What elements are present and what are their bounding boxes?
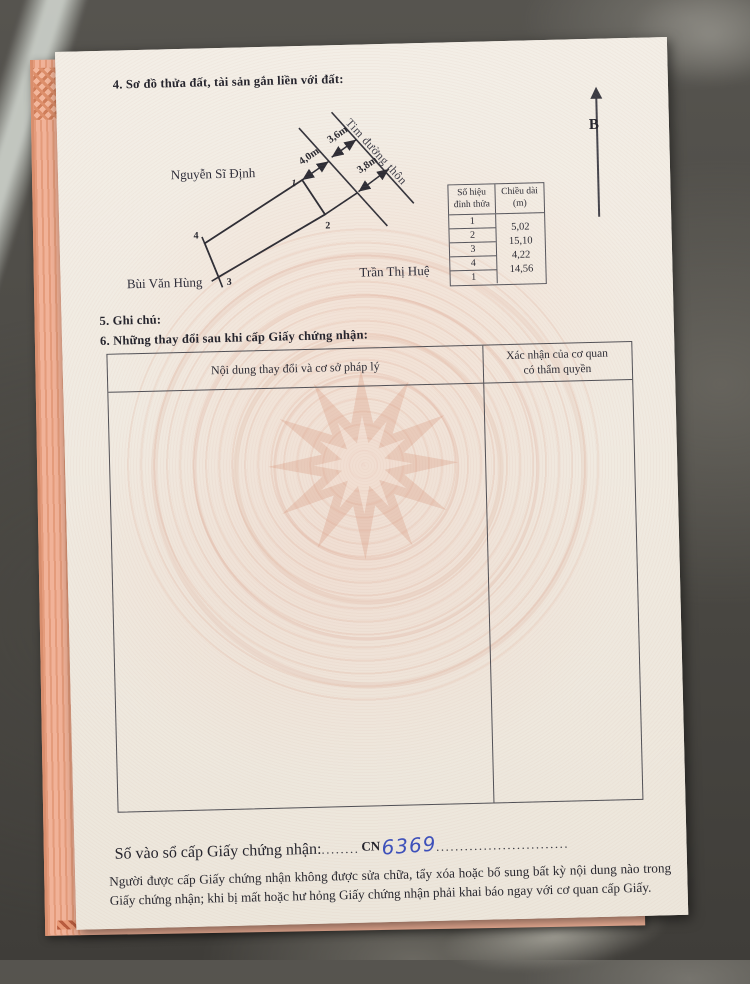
vertex-id-header: Số hiệu đỉnh thửa bbox=[448, 184, 496, 214]
registry-prefix: CN bbox=[361, 838, 380, 853]
vertex-length-table: Số hiệu đỉnh thửa Chiều dài (m) 1 2 3 4 … bbox=[447, 182, 546, 286]
vertex-label-3: 3 bbox=[227, 277, 232, 288]
north-arrow-head bbox=[590, 87, 602, 99]
vertex-label-4: 4 bbox=[193, 231, 198, 242]
length-cell: 14,56 bbox=[497, 262, 545, 277]
vertex-id-cell: 1 bbox=[450, 270, 496, 284]
footer-warning-text: Người được cấp Giấy chứng nhận không đượ… bbox=[109, 859, 672, 910]
vertex-table-header: Số hiệu đỉnh thửa Chiều dài (m) bbox=[448, 183, 544, 215]
vertex-label-1: 1 bbox=[291, 178, 296, 189]
neighbor-bottom-left: Bùi Văn Hùng bbox=[127, 274, 203, 291]
length-cell: 4,22 bbox=[497, 248, 545, 263]
length-header: Chiều dài (m) bbox=[495, 183, 544, 213]
changes-table: Nội dung thay đổi và cơ sở pháp lý Xác n… bbox=[106, 341, 643, 813]
certificate-page: 4. Sơ đồ thửa đất, tài sản gắn liền với … bbox=[55, 37, 688, 930]
parcel-edge-extension bbox=[325, 193, 359, 215]
registry-number-line: Số vào sổ cấp Giấy chứng nhận:........CN… bbox=[114, 829, 569, 864]
neighbor-bottom-right: Trần Thị Huệ bbox=[359, 263, 430, 280]
road-name-label: Tim đường thôn bbox=[343, 116, 410, 188]
section6-title: 6. Những thay đổi sau khi cấp Giấy chứng… bbox=[100, 327, 368, 349]
dot-leader: ........ bbox=[321, 841, 359, 857]
section4-title: 4. Sơ đồ thửa đất, tài sản gắn liền với … bbox=[113, 72, 344, 93]
changes-content-header: Nội dung thay đổi và cơ sở pháp lý bbox=[107, 346, 483, 392]
north-label: B bbox=[589, 117, 599, 134]
vertex-id-cell: 3 bbox=[450, 242, 496, 257]
vertex-id-column: 1 2 3 4 1 bbox=[449, 214, 498, 284]
length-column: 5,02 15,10 4,22 14,56 bbox=[496, 213, 546, 283]
north-arrow-shaft bbox=[595, 95, 599, 217]
length-cell: 5,02 bbox=[496, 220, 544, 235]
vertex-id-cell: 2 bbox=[449, 228, 495, 243]
section5-title: 5. Ghi chú: bbox=[99, 312, 161, 329]
length-cell: 15,10 bbox=[497, 234, 545, 249]
neighbor-top-left: Nguyễn Sĩ Định bbox=[171, 165, 256, 182]
plot-sketch: 4,0m 3,6m 3,8m Tim đường thôn 1 2 3 4 Ng… bbox=[76, 102, 471, 311]
vertex-id-cell: 4 bbox=[450, 256, 496, 271]
vertex-label-2: 2 bbox=[325, 220, 330, 231]
parcel-outline bbox=[203, 179, 326, 277]
dot-leader: ............................ bbox=[436, 836, 569, 854]
north-arrow-icon: B bbox=[576, 86, 619, 227]
changes-confirmation-header: Xác nhận của cơ quan có thẩm quyền bbox=[482, 342, 632, 383]
handwritten-registry-number: 6369 bbox=[380, 832, 437, 860]
photo-of-certificate: { "page": { "section4_title": "4. Sơ đồ … bbox=[0, 0, 750, 960]
registry-label: Số vào sổ cấp Giấy chứng nhận: bbox=[114, 841, 321, 863]
vertex-id-cell: 1 bbox=[449, 214, 495, 229]
changes-table-divider bbox=[482, 346, 494, 803]
